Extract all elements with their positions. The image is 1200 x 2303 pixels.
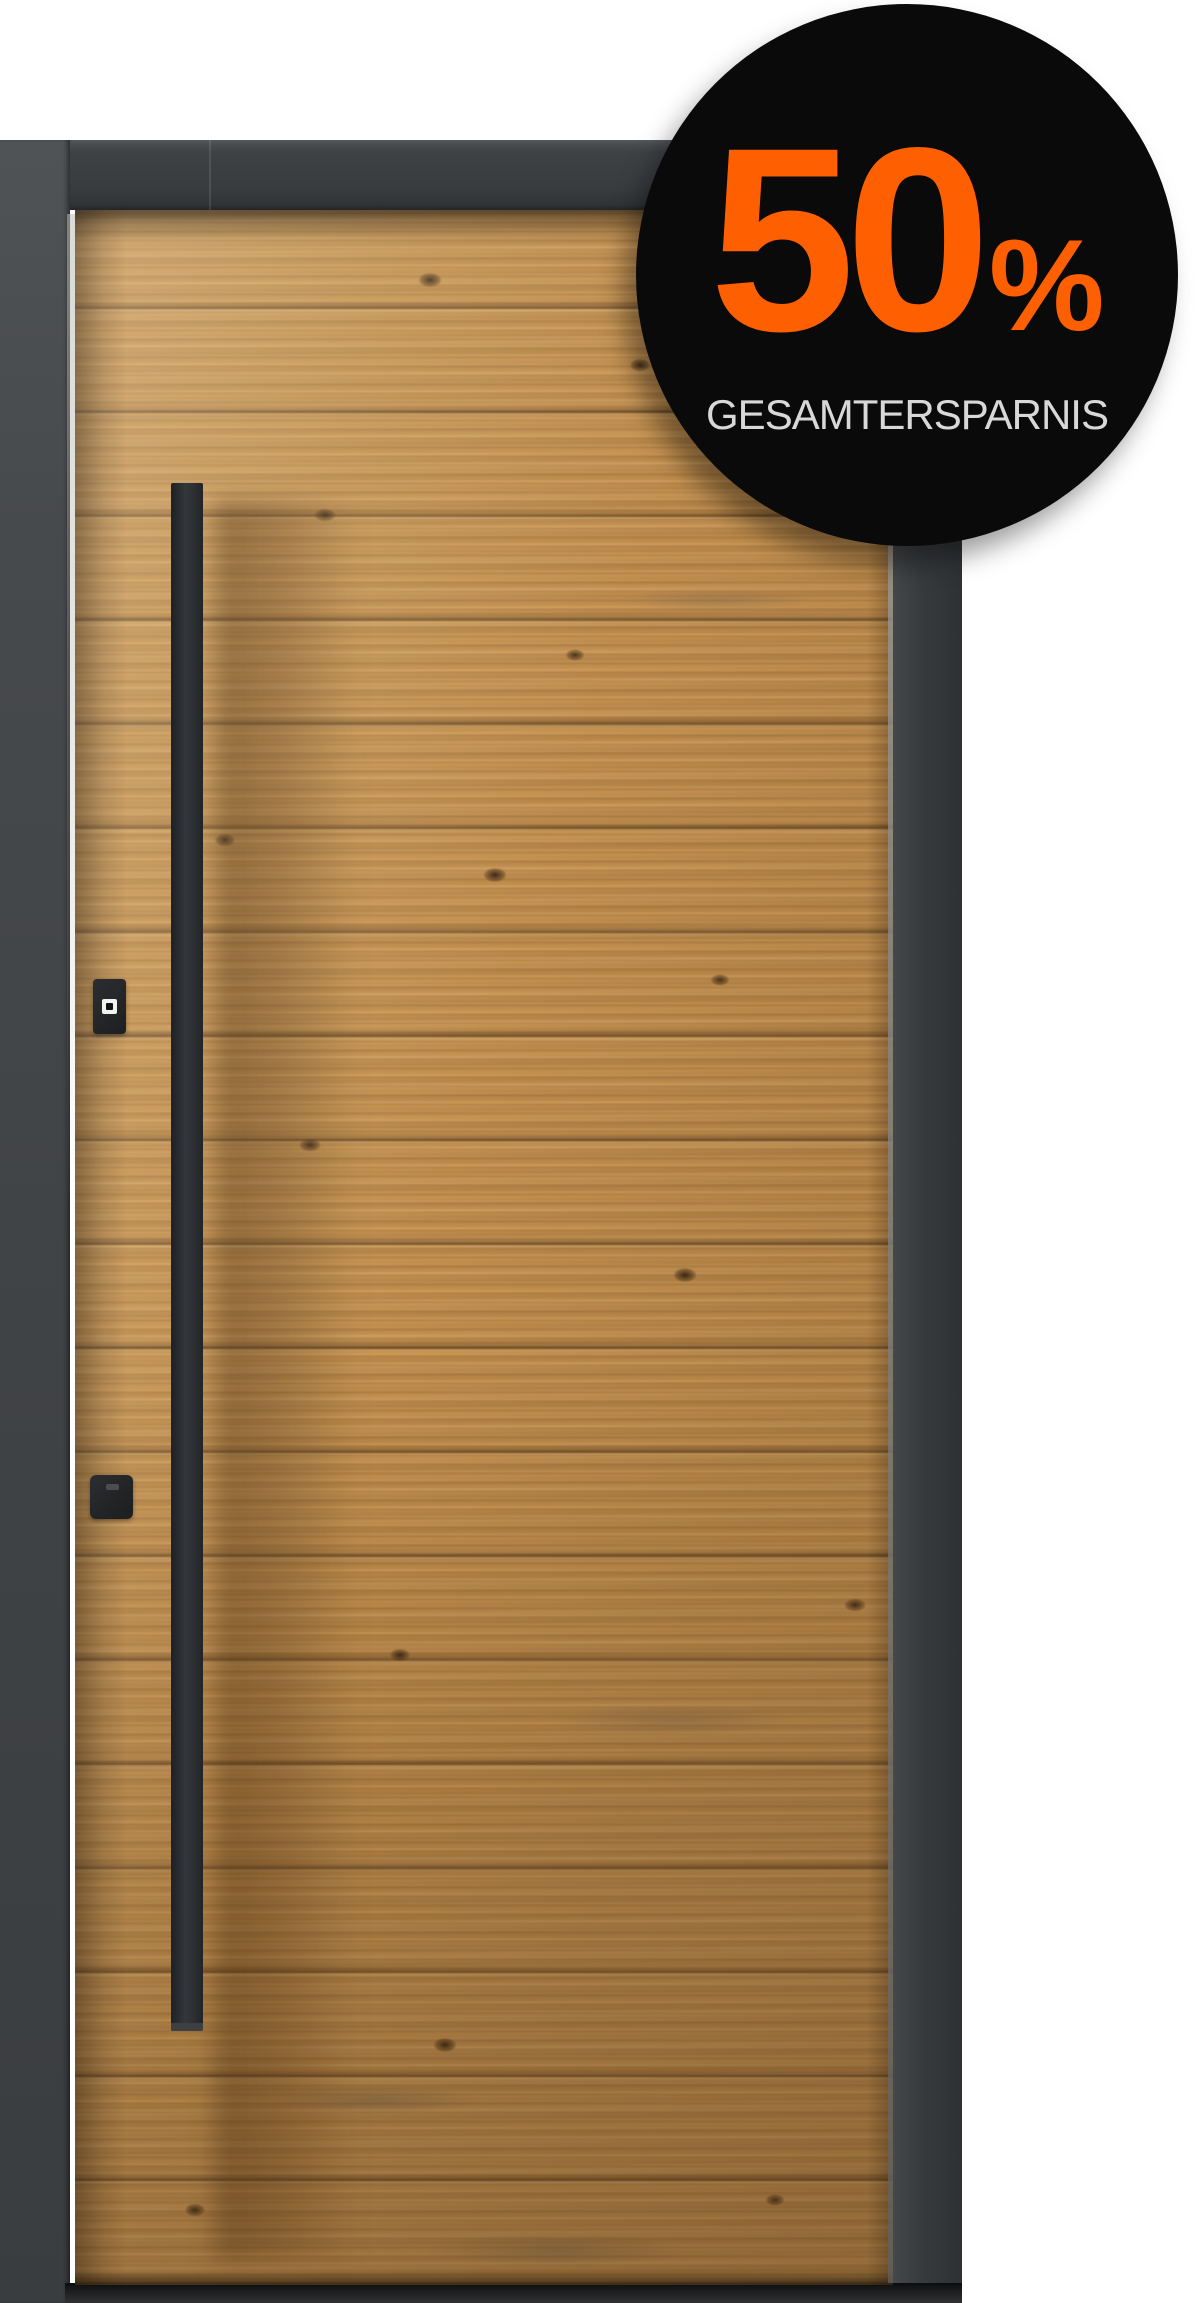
fingerprint-sensor-window (102, 999, 117, 1014)
discount-percent-sign: % (989, 212, 1105, 358)
discount-value: 50 (709, 93, 980, 386)
door-handle-bar[interactable] (171, 483, 203, 2031)
fingerprint-sensor-icon (106, 1003, 113, 1010)
handle-cast-shadow (215, 500, 365, 2260)
handle-end-cap (171, 2023, 203, 2031)
bottom-edge-shadow (75, 2269, 893, 2285)
discount-badge: 50% GESAMTERSPARNIS (636, 4, 1178, 546)
door-threshold (65, 2283, 962, 2303)
discount-caption: GESAMTERSPARNIS (706, 389, 1108, 441)
door-frame-jamb-left (0, 140, 70, 2303)
leaf-edge-highlight-left (67, 214, 75, 1214)
discount-value-line: 50% (709, 109, 1104, 371)
lock-module[interactable] (90, 1475, 133, 1519)
lock-keyhole-detail (106, 1484, 119, 1490)
frame-joint-seam (209, 140, 211, 210)
fingerprint-scanner[interactable] (93, 979, 126, 1034)
left-edge-shadow (75, 210, 127, 2285)
front-door-product-image: 50% GESAMTERSPARNIS (0, 0, 1200, 2303)
